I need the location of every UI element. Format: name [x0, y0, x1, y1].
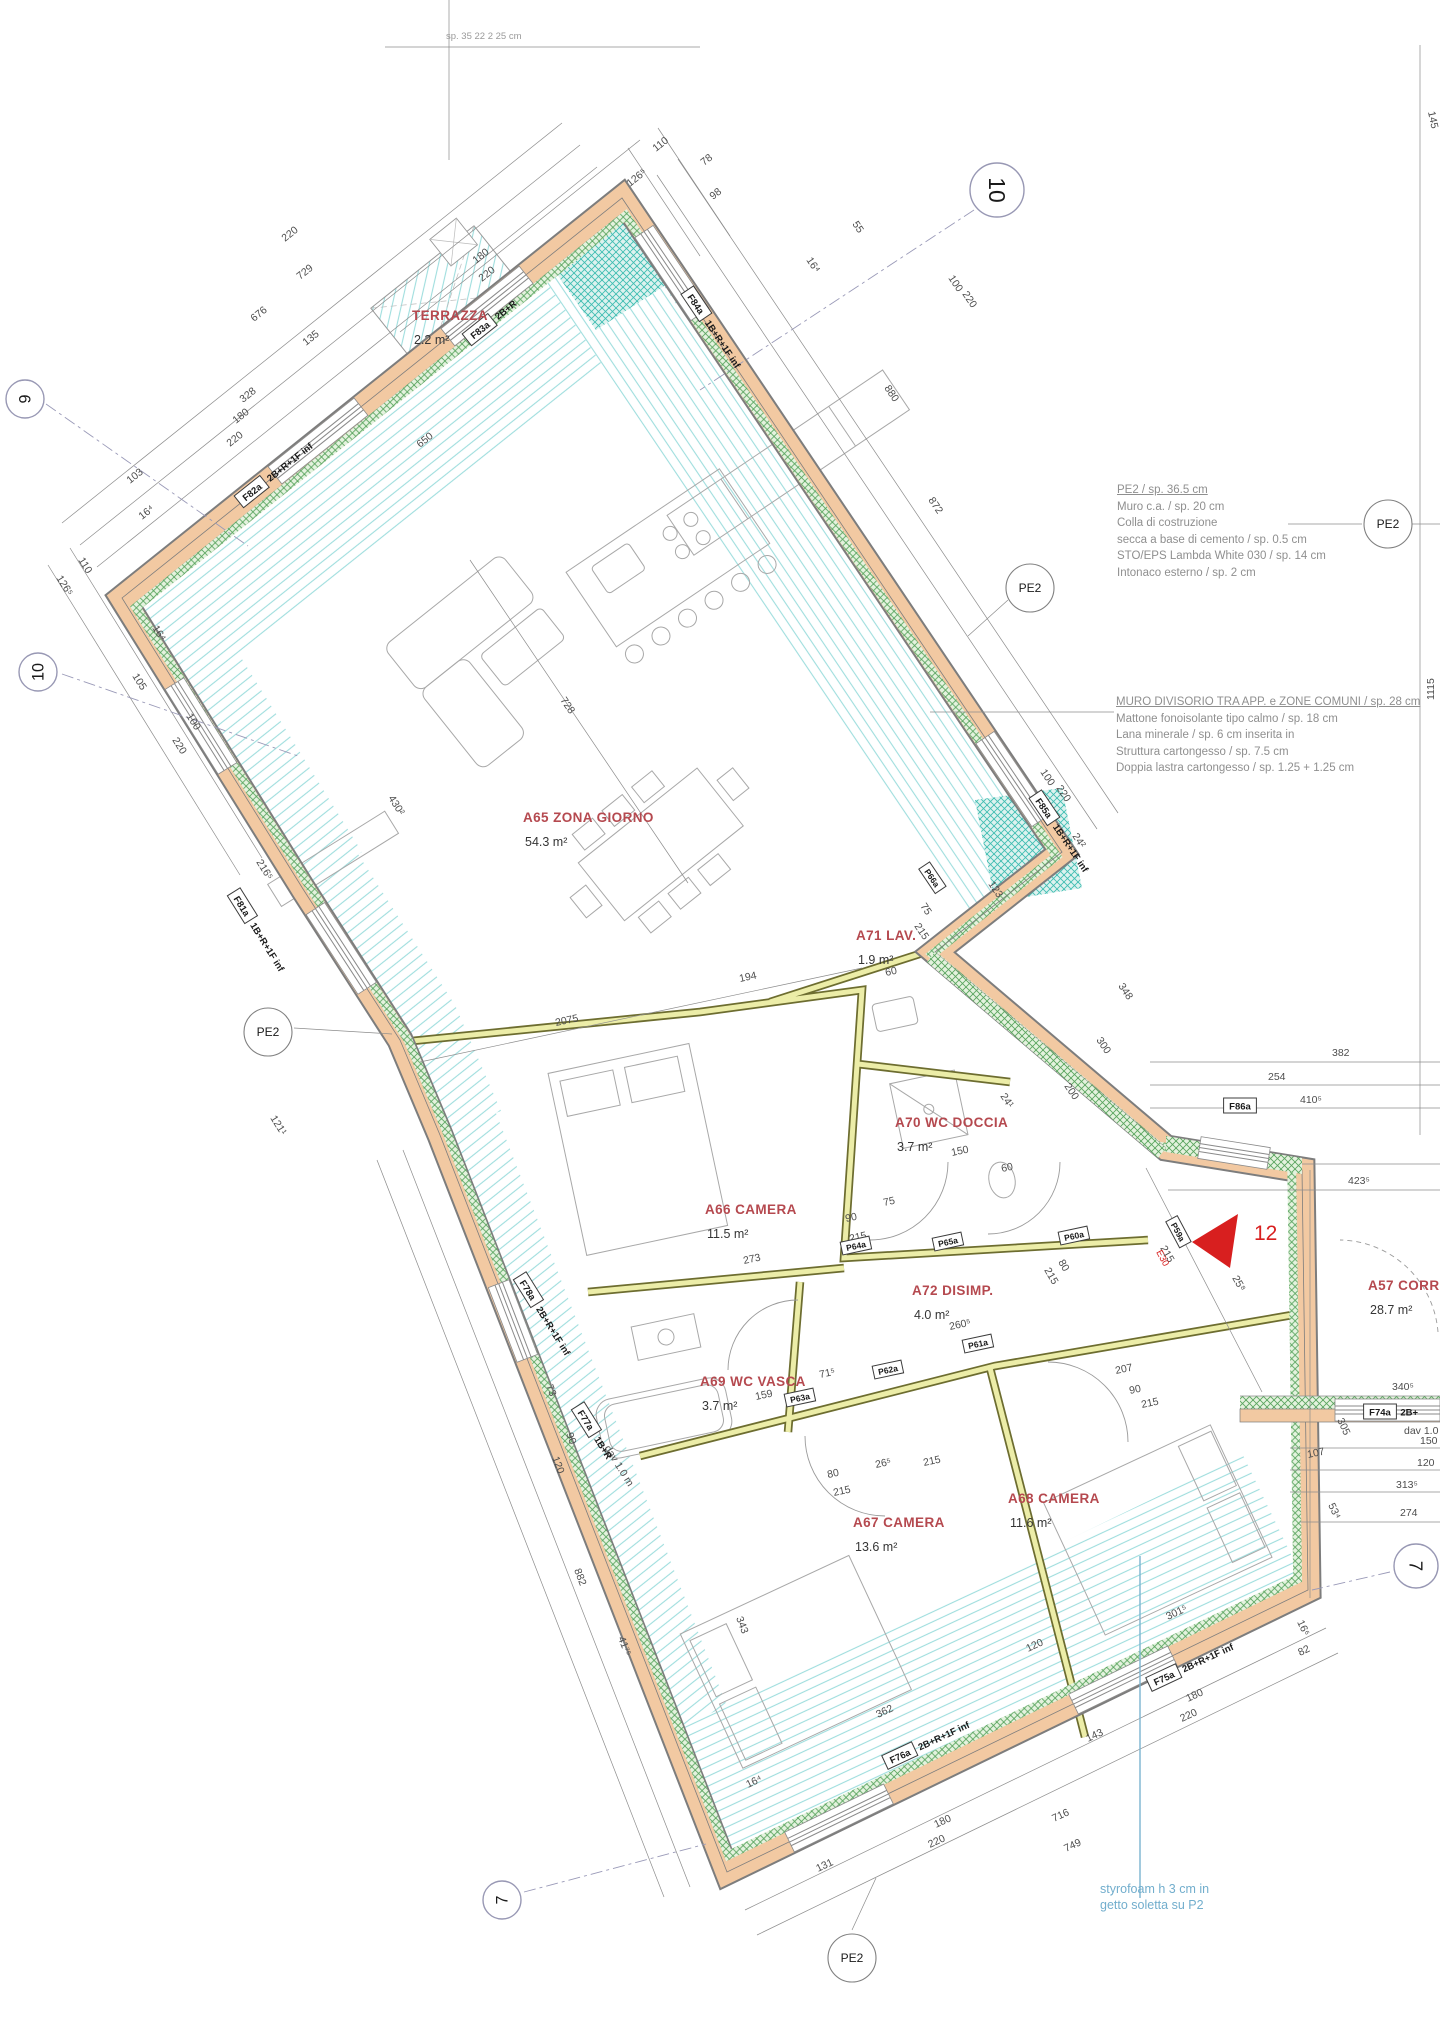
- note-divisorio: MURO DIVISORIO TRA APP. e ZONE COMUNI / …: [1116, 694, 1420, 777]
- note-divisorio-title: MURO DIVISORIO TRA APP. e ZONE COMUNI / …: [1116, 694, 1420, 711]
- dimension-text: 220: [169, 735, 189, 756]
- note-line: Mattone fonoisolante tipo calmo / sp. 18…: [1116, 711, 1420, 728]
- window-tag-f86a: F86a: [1224, 1098, 1257, 1113]
- door-arcs: [728, 1162, 1438, 1516]
- pe2-bubble-label: PE2: [257, 1025, 280, 1039]
- furniture-bed-a66: [548, 1044, 728, 1256]
- window-tag-f81a: F81a1B+R+1F inf: [227, 888, 289, 975]
- dimension-text: 215: [922, 1454, 942, 1469]
- dimension-text: 60: [1000, 1161, 1014, 1175]
- dimension-text: dav 1.0 m: [1404, 1425, 1440, 1437]
- note-line: getto soletta su P2: [1100, 1898, 1209, 1914]
- room-name: A66 CAMERA: [705, 1202, 797, 1217]
- room-area: 2.2 m²: [414, 333, 449, 347]
- dimension-text: 100: [946, 273, 966, 294]
- note-line: Doppia lastra cartongesso / sp. 1.25 + 1…: [1116, 760, 1420, 777]
- dimension-text: 55: [850, 219, 867, 236]
- dimension-text: 430²: [385, 793, 407, 818]
- dimension-text: 215: [832, 1484, 852, 1499]
- dimension-text: 220: [224, 429, 245, 449]
- dimension-text: 729: [294, 262, 315, 282]
- dimension-text: 78: [698, 152, 715, 169]
- dimension-text: 343: [733, 1615, 751, 1636]
- note-pe2-lines: Muro c.a. / sp. 20 cmColla di costruzion…: [1117, 499, 1326, 582]
- room-area: 11.6 m²: [1010, 1516, 1051, 1530]
- window-tag-type: 1B+R+1F inf: [247, 921, 286, 975]
- dimension-text: 110: [75, 555, 94, 576]
- note-styrofoam: styrofoam h 3 cm ingetto soletta su P2: [1100, 1882, 1209, 1913]
- dimension-text: 90: [1128, 1383, 1142, 1397]
- dimension-text: 194: [738, 970, 758, 985]
- dimension-text: 313⁵: [1396, 1479, 1418, 1491]
- floorplan-drawing: 72967622013532818022010316⁴180220110126⁵…: [0, 0, 1440, 2037]
- dimension-text: 872: [926, 495, 946, 516]
- dimension-text: 120: [1417, 1457, 1435, 1469]
- note-top-partial: sp. 35 22 2 25 cm: [446, 31, 522, 42]
- dimension-text: 100: [1038, 767, 1058, 788]
- dimension-text: 215: [1041, 1266, 1060, 1287]
- dimension-text: 410⁵: [1300, 1094, 1322, 1106]
- door-tag-p61a: P61a: [962, 1334, 993, 1353]
- furniture-dining: [540, 730, 781, 958]
- room-name: A65 ZONA GIORNO: [523, 810, 654, 825]
- note-line: styrofoam h 3 cm in: [1100, 1882, 1209, 1898]
- dimension-text: 131: [814, 1856, 835, 1874]
- dimension-text: 340⁵: [1392, 1381, 1414, 1393]
- dimension-text: 1115: [1425, 678, 1437, 700]
- room-name: A67 CAMERA: [853, 1515, 945, 1530]
- furniture-sofa: [383, 553, 599, 770]
- grid-bubble-7: 7: [1394, 1544, 1438, 1588]
- dimension-text: 75: [882, 1195, 896, 1209]
- dimension-text: 220: [960, 289, 980, 310]
- dimension-text: 159: [754, 1388, 774, 1403]
- grid-bubble-10: 10: [970, 163, 1024, 217]
- pe2-bubble: PE2: [244, 1008, 292, 1056]
- note-line: Muro c.a. / sp. 20 cm: [1117, 499, 1326, 516]
- grid-bubble-10: 10: [19, 653, 57, 691]
- room-area: 28.7 m²: [1370, 1303, 1412, 1317]
- note-line: Lana minerale / sp. 6 cm inserita in: [1116, 727, 1420, 744]
- pe2-bubble: PE2: [1006, 564, 1054, 612]
- dimension-text: 80: [826, 1467, 840, 1481]
- room-area: 54.3 m²: [525, 835, 567, 849]
- dimension-text: 103: [124, 466, 145, 486]
- dimension-text: 145: [1425, 110, 1440, 130]
- dimension-text: 16⁴: [804, 255, 823, 275]
- dimension-text: 716: [1050, 1806, 1071, 1824]
- pe2-bubble-label: PE2: [1019, 581, 1042, 595]
- pe2-bubble-label: PE2: [1377, 517, 1400, 531]
- door-arc-a70: [988, 1162, 1060, 1234]
- grid-bubble-label: 10: [30, 663, 48, 681]
- dimension-text: 16⁴: [136, 503, 156, 522]
- room-name: TERRAZZA: [412, 308, 488, 323]
- door-arc-a66: [870, 1162, 948, 1240]
- dimension-text: 107: [1306, 1446, 1326, 1461]
- note-line: Colla di costruzione: [1117, 515, 1326, 532]
- dimension-text: 90: [844, 1211, 858, 1225]
- note-line: STO/EPS Lambda White 030 / sp. 14 cm: [1117, 548, 1326, 565]
- fixture-vanity-a69: [631, 1314, 701, 1361]
- door-arc-a69: [728, 1300, 798, 1370]
- dimension-text: 71⁵: [818, 1366, 836, 1381]
- door-tag-p62a: P62a: [872, 1360, 903, 1379]
- note-pe2-title: PE2 / sp. 36.5 cm: [1117, 482, 1326, 499]
- floorplan-canvas: 72967622013532818022010316⁴180220110126⁵…: [0, 0, 1440, 2037]
- room-area: 1.9 m²: [858, 953, 893, 967]
- grid-bubble-9: 9: [6, 380, 44, 418]
- room-area: 3.7 m²: [897, 1140, 932, 1154]
- room-name: A68 CAMERA: [1008, 1491, 1100, 1506]
- pe2-bubble: PE2: [828, 1934, 876, 1982]
- dimension-text: 382: [1332, 1047, 1350, 1059]
- dimension-text: 300: [1094, 1035, 1114, 1056]
- dimension-text: 26⁵: [874, 1456, 892, 1471]
- dimension-text: 82: [1296, 1643, 1312, 1659]
- dimension-text: 180: [230, 406, 251, 426]
- room-area: 13.6 m²: [855, 1540, 897, 1554]
- note-line: Struttura cartongesso / sp. 7.5 cm: [1116, 744, 1420, 761]
- dimension-text: 121¹: [267, 1113, 289, 1138]
- room-area: 3.7 m²: [702, 1399, 737, 1413]
- window-tag-code: F74a: [1369, 1408, 1391, 1419]
- room-area: 11.5 m²: [707, 1227, 748, 1241]
- dimension-text: 135: [300, 328, 321, 348]
- fixture-sink-a71: [872, 996, 919, 1032]
- dimension-text: 676: [248, 304, 269, 324]
- room-name: A72 DISIMP.: [912, 1283, 993, 1298]
- dimension-text: 207: [1114, 1362, 1134, 1377]
- dimension-text: 53⁴: [1325, 1501, 1343, 1521]
- dimension-text: 882: [571, 1567, 589, 1588]
- dimension-text: 25⁸: [1229, 1274, 1247, 1294]
- room-area: 4.0 m²: [914, 1308, 949, 1322]
- room-name: A57 CORRIDOIO: [1368, 1278, 1440, 1293]
- dimension-text: 16⁶: [1294, 1618, 1312, 1638]
- room-name: A71 LAV.: [856, 928, 916, 943]
- dimension-text: 254: [1268, 1071, 1286, 1083]
- note-styrofoam-lines: styrofoam h 3 cm ingetto soletta su P2: [1100, 1882, 1209, 1913]
- dimension-text: 24¹: [998, 1091, 1017, 1111]
- grid-bubble-label: 7: [494, 1895, 512, 1904]
- dimension-text: 180: [932, 1812, 953, 1830]
- dimension-text: 880: [882, 383, 902, 404]
- grid-bubble-label: 10: [984, 177, 1010, 203]
- note-line: Intonaco esterno / sp. 2 cm: [1117, 565, 1326, 582]
- dimension-text: 75: [918, 901, 935, 918]
- pe2-bubble-label: PE2: [841, 1951, 864, 1965]
- dimension-text: 98: [707, 186, 724, 203]
- dimension-text: 423⁵: [1348, 1175, 1370, 1187]
- dimension-text: 260⁵: [948, 1317, 972, 1333]
- room-name: A69 WC VASCA: [700, 1374, 806, 1389]
- grid-bubble-7: 7: [483, 1881, 521, 1919]
- dimension-text: 150: [950, 1144, 970, 1159]
- dimension-text: 105: [129, 671, 149, 692]
- note-line: secca a base di cemento / sp. 0.5 cm: [1117, 532, 1326, 549]
- dimension-text: 220: [279, 224, 300, 244]
- dimension-text: 273: [742, 1252, 762, 1267]
- room-name: A70 WC DOCCIA: [895, 1115, 1008, 1130]
- grid-bubble-label: 9: [17, 394, 35, 403]
- window-tag-type: 2B+: [1400, 1408, 1418, 1419]
- dimension-text: 220: [926, 1832, 947, 1850]
- dimension-text: 180: [1184, 1686, 1205, 1704]
- dimension-text: 348: [1116, 981, 1136, 1002]
- section-marker-triangle: [1192, 1214, 1238, 1268]
- door-arc-a67: [805, 1436, 885, 1516]
- dimension-text: 126⁵: [53, 573, 75, 598]
- dimension-text: 728: [558, 695, 578, 716]
- dimension-text: 126⁵: [624, 166, 649, 189]
- window-tag-code: F86a: [1229, 1102, 1251, 1113]
- hatch-band-left-mid: [310, 854, 501, 1132]
- dimension-text: 274: [1400, 1507, 1418, 1519]
- dimension-text: 749: [1062, 1836, 1083, 1854]
- dimension-text: 110: [650, 134, 671, 154]
- note-pe2-stratigraphy: PE2 / sp. 36.5 cm Muro c.a. / sp. 20 cmC…: [1117, 482, 1326, 581]
- fixture-shower-a70: [890, 1070, 968, 1148]
- dimension-text: 328: [237, 385, 258, 405]
- section-marker-number: 12: [1254, 1222, 1277, 1245]
- dimension-text: 80: [1055, 1258, 1071, 1274]
- dimension-text: 215: [1140, 1396, 1160, 1411]
- pe2-bubble: PE2: [1364, 500, 1412, 548]
- grid-bubble-label: 7: [1405, 1561, 1426, 1571]
- note-divisorio-lines: Mattone fonoisolante tipo calmo / sp. 18…: [1116, 711, 1420, 777]
